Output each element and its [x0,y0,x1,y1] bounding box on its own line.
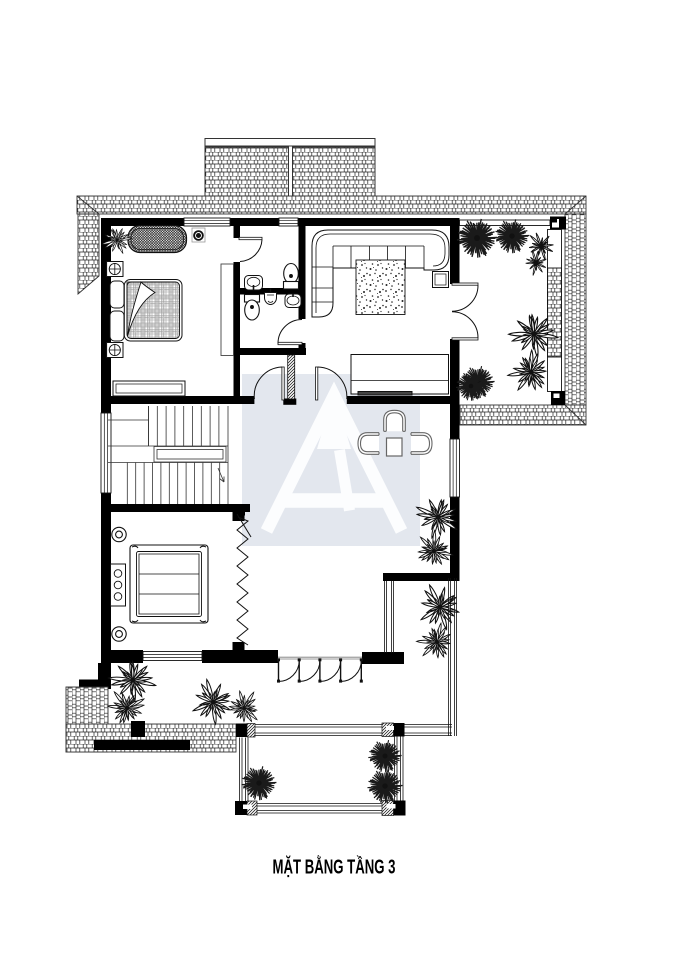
svg-text:MẶT BẰNG TẦNG 3: MẶT BẰNG TẦNG 3 [273,855,396,879]
